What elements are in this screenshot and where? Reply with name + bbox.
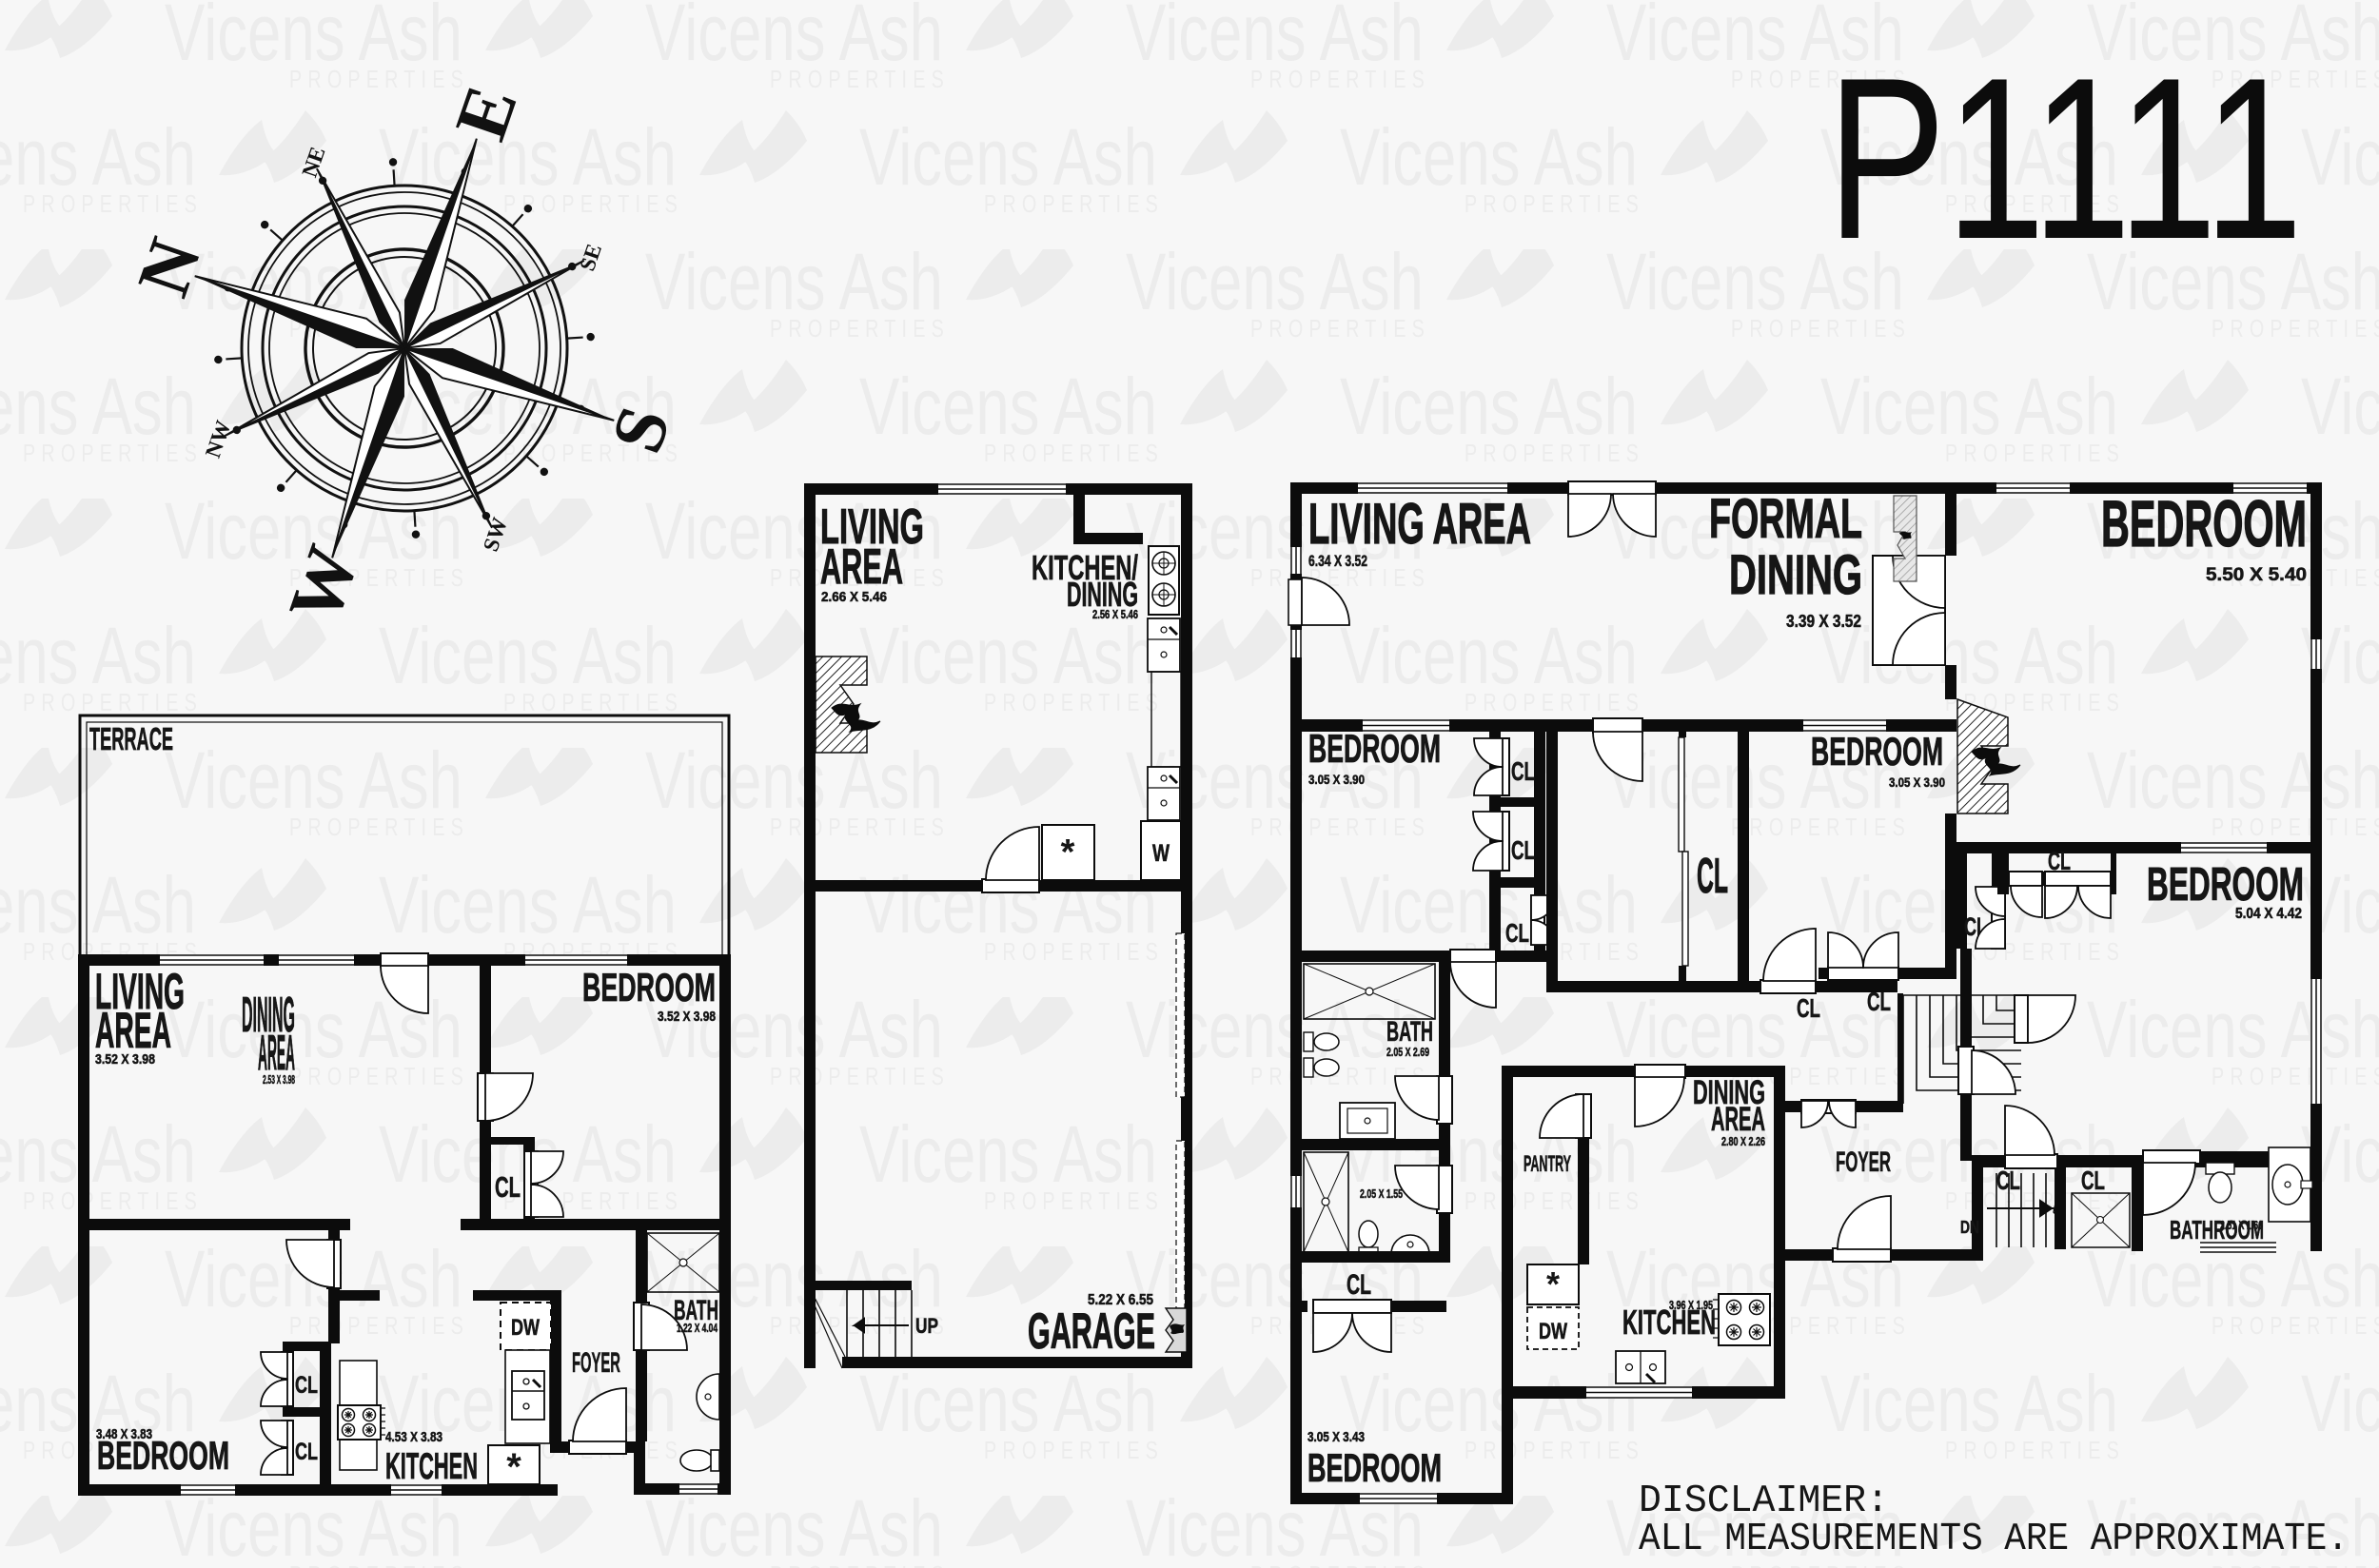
svg-text:KITCHEN: KITCHEN xyxy=(385,1446,478,1487)
svg-text:AREA: AREA xyxy=(820,539,903,594)
svg-text:*: * xyxy=(1546,1264,1560,1303)
svg-text:FOYER: FOYER xyxy=(1836,1147,1891,1178)
svg-text:CL: CL xyxy=(1505,918,1529,948)
svg-text:2.05 X 2.69: 2.05 X 2.69 xyxy=(1386,1046,1429,1059)
svg-text:FOYER: FOYER xyxy=(572,1347,620,1379)
svg-text:BEDROOM: BEDROOM xyxy=(1308,726,1441,771)
svg-text:PANTRY: PANTRY xyxy=(1524,1152,1571,1177)
svg-text:2.56 X 5.46: 2.56 X 5.46 xyxy=(1092,608,1138,621)
svg-text:4.53 X 3.83: 4.53 X 3.83 xyxy=(385,1430,442,1445)
svg-text:3.39 X 3.52: 3.39 X 3.52 xyxy=(1786,612,1861,631)
svg-text:AREA: AREA xyxy=(1711,1101,1765,1138)
svg-text:5.22 X 6.55: 5.22 X 6.55 xyxy=(1088,1292,1153,1308)
svg-text:5.04 X 4.42: 5.04 X 4.42 xyxy=(2235,906,2302,922)
svg-text:3.52 X 3.98: 3.52 X 3.98 xyxy=(95,1052,155,1068)
svg-text:3.48 X 3.83: 3.48 X 3.83 xyxy=(96,1427,152,1442)
svg-text:2.66 X 5.46: 2.66 X 5.46 xyxy=(821,590,887,605)
svg-text:BATHROOM: BATHROOM xyxy=(2170,1215,2264,1245)
svg-text:CL: CL xyxy=(2048,847,2071,875)
svg-text:FORMAL: FORMAL xyxy=(1709,488,1862,550)
svg-text:CL: CL xyxy=(1797,993,1820,1023)
svg-text:3.52 X 3.98: 3.52 X 3.98 xyxy=(658,1009,716,1025)
svg-text:CL: CL xyxy=(1347,1269,1371,1301)
svg-text:3.05 X 3.43: 3.05 X 3.43 xyxy=(1307,1430,1365,1445)
svg-text:3.05 X 3.90: 3.05 X 3.90 xyxy=(1308,772,1365,787)
svg-text:CL: CL xyxy=(2081,1166,2105,1195)
svg-text:CL: CL xyxy=(1511,835,1535,865)
svg-text:GARAGE: GARAGE xyxy=(1028,1303,1155,1360)
svg-text:5.50 X 5.40: 5.50 X 5.40 xyxy=(2206,564,2307,585)
svg-text:DW: DW xyxy=(1539,1320,1567,1344)
svg-text:W: W xyxy=(1152,840,1170,867)
svg-text:2.53 X 3.98: 2.53 X 3.98 xyxy=(263,1072,295,1087)
svg-text:LIVING AREA: LIVING AREA xyxy=(1308,492,1531,556)
svg-text:2.05 X 1.55: 2.05 X 1.55 xyxy=(1360,1187,1403,1201)
svg-text:6.34 X 3.52: 6.34 X 3.52 xyxy=(1308,552,1367,570)
svg-text:ALL MEASUREMENTS ARE APPROXIMA: ALL MEASUREMENTS ARE APPROXIMATE. xyxy=(1639,1518,2349,1561)
svg-text:CL: CL xyxy=(295,1439,318,1465)
svg-text:CL: CL xyxy=(1511,756,1535,786)
svg-text:3.96 X 1.95: 3.96 X 1.95 xyxy=(1669,1298,1713,1312)
svg-text:*: * xyxy=(506,1446,521,1488)
svg-text:*: * xyxy=(1061,833,1075,872)
svg-text:BATH: BATH xyxy=(1386,1016,1433,1048)
svg-text:BEDROOM: BEDROOM xyxy=(2101,488,2307,560)
svg-text:1.22 X 4.04: 1.22 X 4.04 xyxy=(677,1322,718,1335)
svg-text:P1111: P1111 xyxy=(1827,30,2303,287)
svg-text:BEDROOM: BEDROOM xyxy=(1307,1445,1442,1490)
svg-text:DW: DW xyxy=(511,1316,540,1341)
svg-text:CL: CL xyxy=(495,1170,521,1204)
svg-text:DN: DN xyxy=(1960,1218,1979,1237)
svg-text:BEDROOM: BEDROOM xyxy=(2147,859,2304,911)
svg-text:UP: UP xyxy=(915,1314,938,1338)
svg-text:3.05 X 3.90: 3.05 X 3.90 xyxy=(1889,774,1945,790)
svg-text:BEDROOM: BEDROOM xyxy=(1811,729,1943,774)
svg-text:DINING: DINING xyxy=(1729,544,1862,606)
svg-text:BEDROOM: BEDROOM xyxy=(582,965,716,1009)
svg-text:CL: CL xyxy=(295,1372,318,1399)
svg-text:AREA: AREA xyxy=(95,1003,171,1059)
svg-text:CL: CL xyxy=(1697,848,1728,903)
svg-text:TERRACE: TERRACE xyxy=(89,722,173,757)
svg-text:2.80 X 2.26: 2.80 X 2.26 xyxy=(1721,1135,1765,1148)
